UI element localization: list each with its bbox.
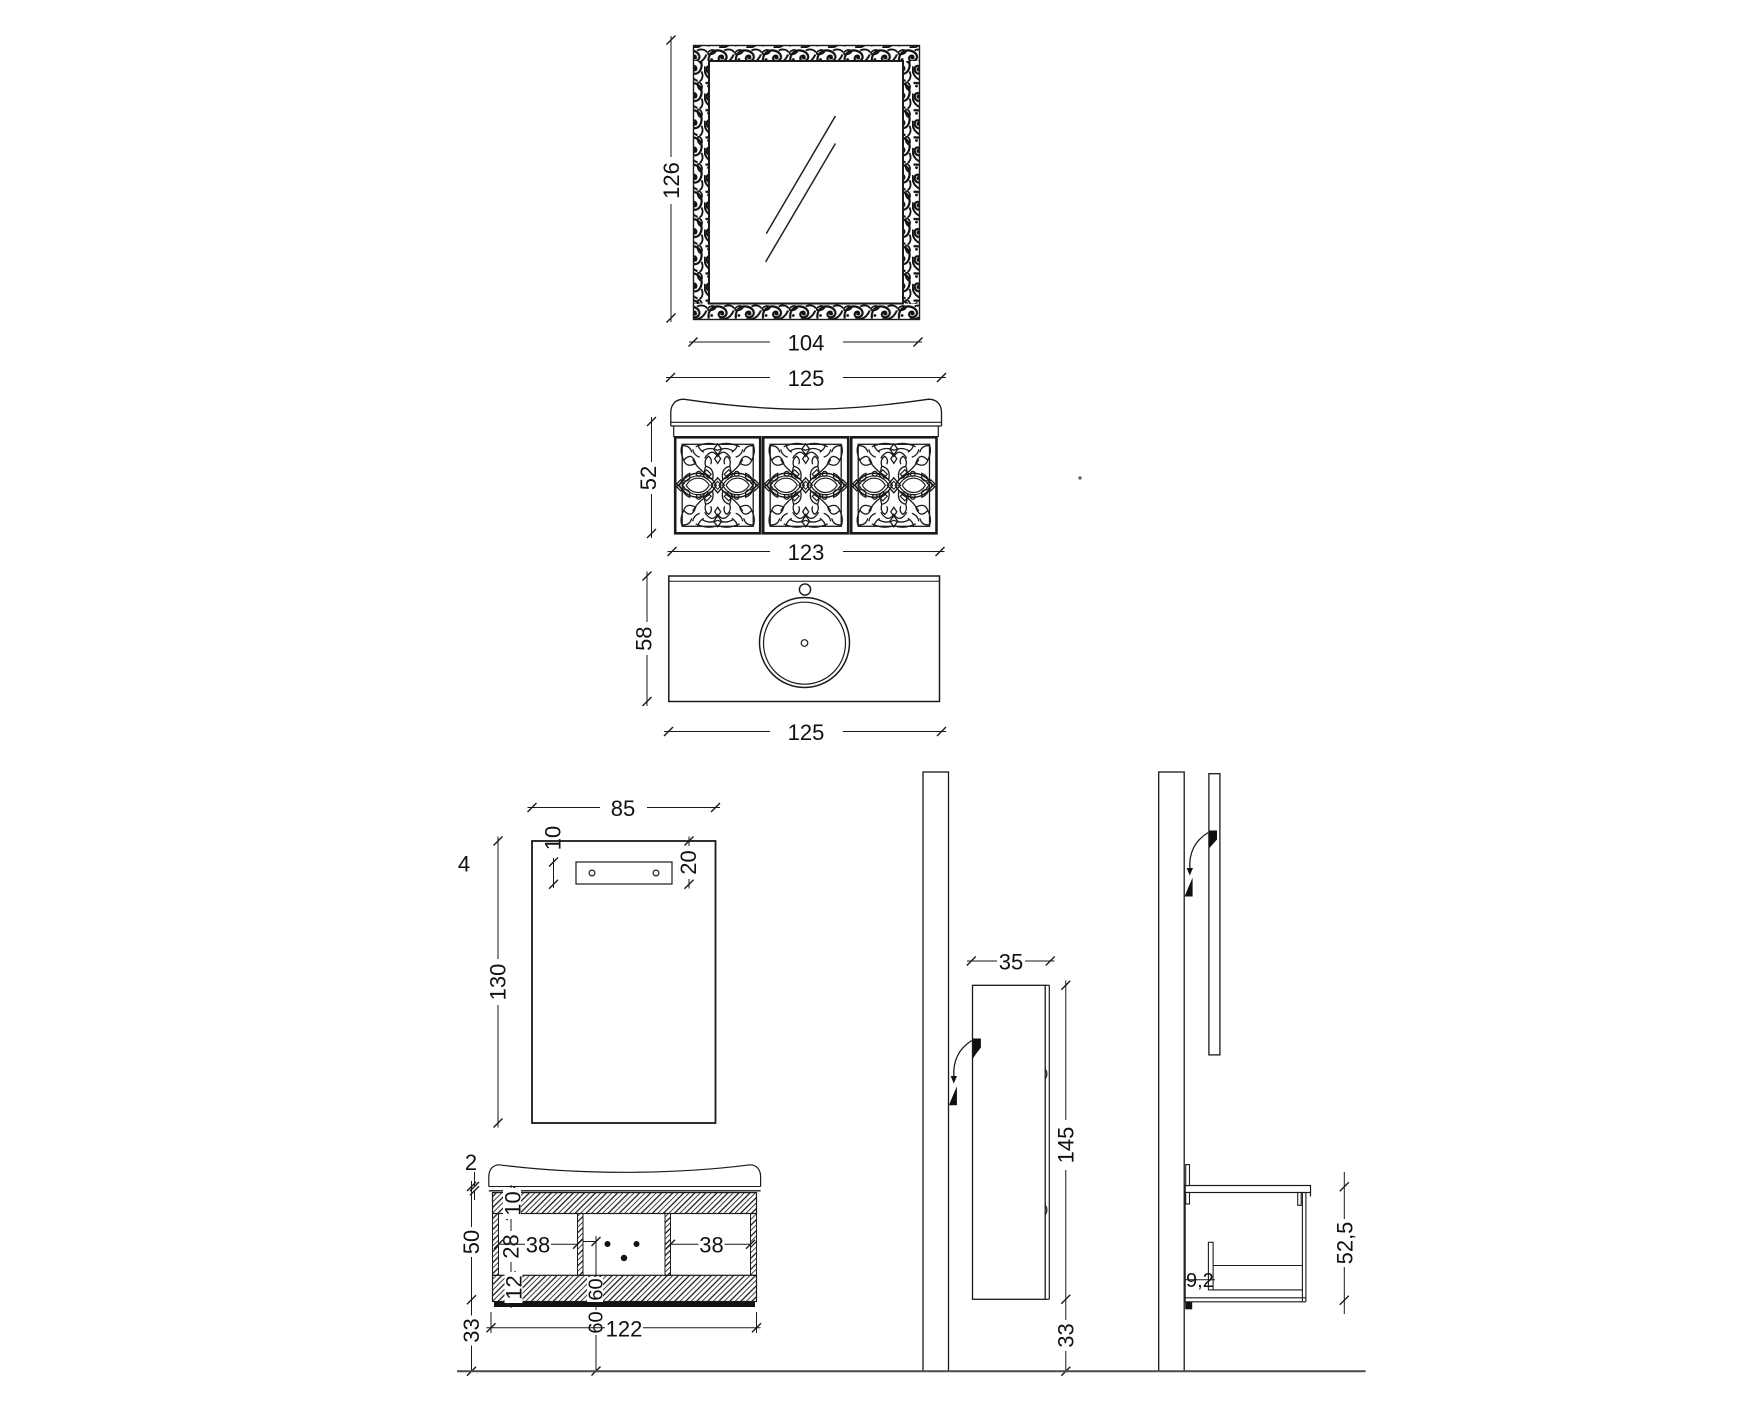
svg-text:60: 60 (586, 1311, 608, 1333)
svg-text:130: 130 (486, 964, 511, 1001)
svg-text:126: 126 (659, 162, 684, 199)
svg-text:125: 125 (788, 366, 825, 391)
svg-text:33: 33 (459, 1318, 484, 1342)
svg-text:10: 10 (501, 1191, 526, 1215)
svg-text:50: 50 (459, 1230, 484, 1254)
svg-text:60: 60 (586, 1278, 608, 1300)
svg-text:58: 58 (632, 626, 657, 650)
svg-text:125: 125 (788, 720, 825, 745)
svg-text:52: 52 (636, 466, 661, 490)
svg-text:38: 38 (699, 1233, 723, 1258)
svg-text:35: 35 (999, 950, 1023, 975)
svg-text:10: 10 (541, 826, 566, 850)
svg-text:123: 123 (788, 540, 825, 565)
svg-text:20: 20 (676, 850, 701, 874)
svg-text:145: 145 (1053, 1127, 1078, 1164)
svg-text:2: 2 (465, 1150, 477, 1175)
svg-text:104: 104 (788, 331, 825, 356)
svg-text:12: 12 (502, 1275, 527, 1299)
svg-text:122: 122 (606, 1316, 643, 1341)
svg-text:52,5: 52,5 (1333, 1222, 1358, 1265)
svg-text:38: 38 (526, 1233, 550, 1258)
svg-text:85: 85 (611, 796, 635, 821)
svg-text:33: 33 (1053, 1323, 1078, 1347)
svg-text:9,2: 9,2 (1186, 1270, 1214, 1292)
svg-text:28: 28 (499, 1234, 524, 1258)
svg-text:4: 4 (458, 852, 470, 877)
